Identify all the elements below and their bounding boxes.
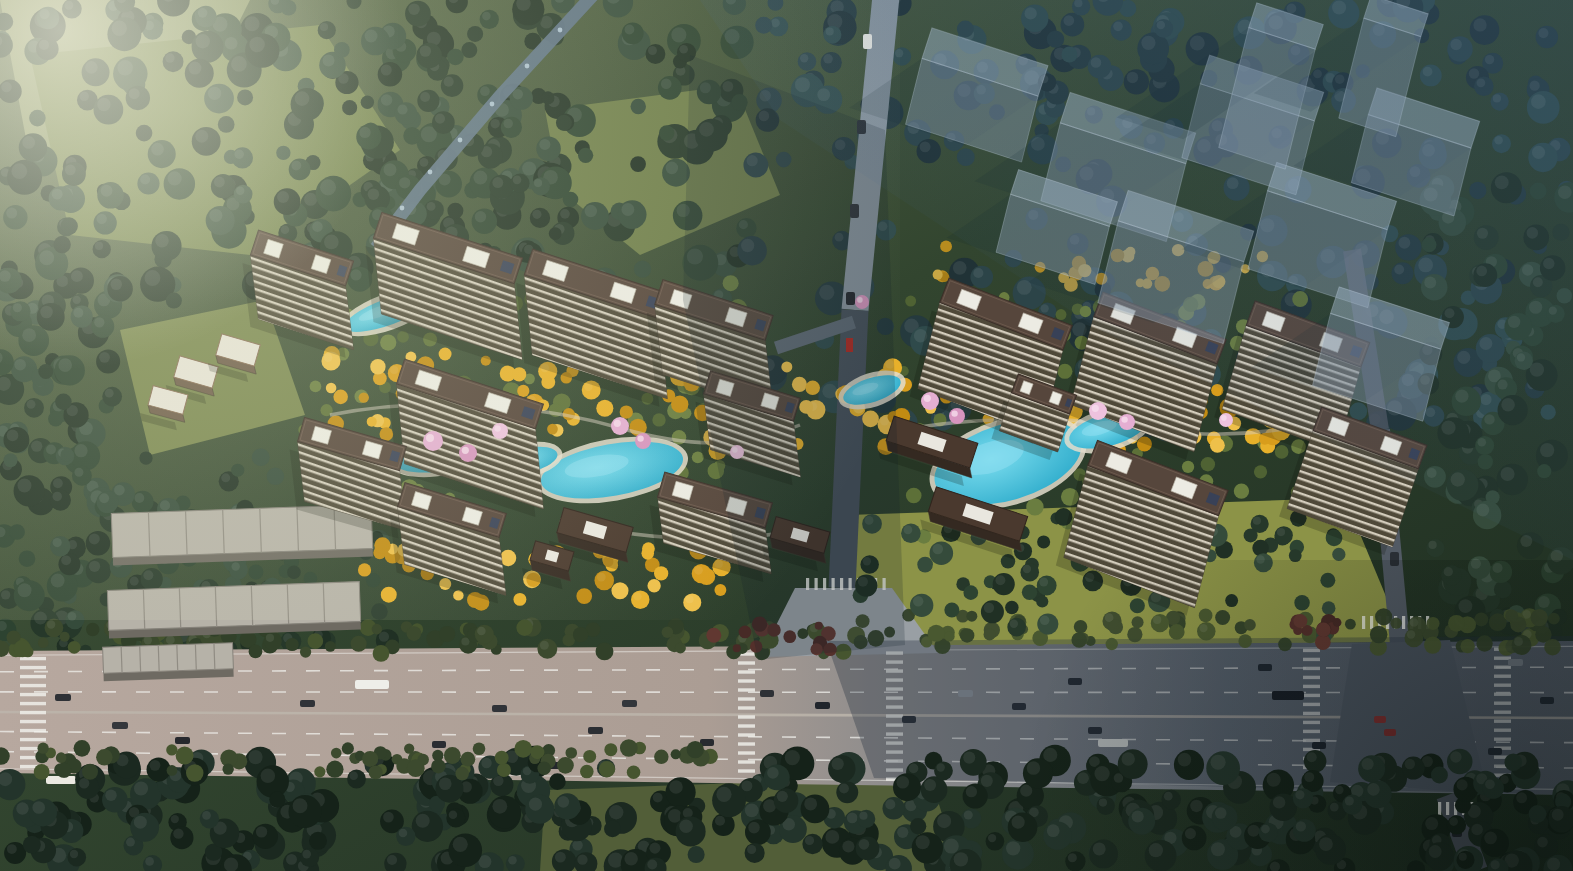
tree-highlight	[266, 634, 274, 642]
car	[622, 700, 637, 707]
tree-highlight	[7, 844, 17, 854]
tree	[739, 626, 752, 639]
blossom-highlight	[1121, 416, 1127, 422]
tree-highlight	[777, 791, 788, 802]
tree	[102, 787, 128, 813]
tree	[74, 740, 91, 757]
tree	[56, 752, 67, 763]
tree	[604, 743, 617, 756]
tree	[300, 646, 311, 657]
tree	[1056, 309, 1067, 320]
tree-highlight	[647, 860, 657, 870]
tree	[166, 744, 177, 755]
tree	[604, 820, 621, 837]
tree	[1201, 457, 1215, 471]
tree	[307, 633, 323, 649]
tree-highlight	[449, 810, 458, 819]
tree-highlight	[679, 819, 693, 833]
tree	[300, 848, 319, 867]
tree-highlight	[889, 858, 901, 870]
tree-highlight	[134, 781, 148, 795]
tree	[4, 842, 26, 864]
tree	[654, 750, 668, 764]
tree	[1244, 528, 1258, 542]
tree	[857, 810, 875, 828]
tree-highlight	[202, 811, 211, 820]
tree	[580, 765, 594, 779]
tree	[940, 240, 952, 252]
zebra-bar	[20, 738, 46, 741]
zebra-bar	[738, 742, 755, 745]
tree-highlight	[741, 780, 752, 791]
tree	[1426, 539, 1444, 557]
tree	[856, 837, 880, 861]
tree	[37, 743, 48, 754]
tree-highlight	[261, 768, 276, 783]
tree	[269, 792, 285, 808]
blossom-highlight	[951, 410, 957, 416]
tree	[23, 836, 41, 854]
tree	[264, 632, 282, 650]
zebra-bar	[738, 688, 755, 691]
tree-highlight	[173, 828, 183, 838]
tree	[906, 488, 922, 504]
car	[760, 690, 774, 697]
tree	[326, 761, 343, 778]
blossom-tree	[949, 408, 965, 424]
zebra-bar	[738, 706, 755, 709]
tree	[431, 759, 445, 773]
tree	[170, 826, 193, 849]
tree	[665, 777, 695, 807]
blossom-tree	[1119, 414, 1135, 430]
tree	[342, 742, 354, 754]
tree	[537, 639, 557, 659]
tree	[1057, 364, 1072, 379]
tree	[444, 747, 461, 764]
car	[815, 702, 830, 709]
tree-highlight	[653, 793, 663, 803]
blossom-highlight	[1092, 405, 1099, 412]
screenshot-root	[0, 0, 1573, 871]
tree-highlight	[649, 843, 660, 854]
blossom-tree	[1219, 413, 1233, 427]
tree	[314, 766, 325, 777]
zebra-bar	[20, 702, 46, 705]
tree	[325, 641, 336, 652]
tree-highlight	[1041, 304, 1049, 312]
tree	[901, 523, 921, 543]
tree	[497, 763, 511, 777]
tree	[905, 296, 916, 307]
tree-highlight	[785, 750, 800, 765]
zebra-bar	[738, 661, 755, 664]
blossom-highlight	[924, 395, 931, 402]
tree	[60, 632, 70, 642]
tree	[712, 783, 746, 817]
zebra-bar	[738, 670, 755, 673]
tree-highlight	[715, 816, 725, 826]
tree	[412, 811, 443, 842]
tree-highlight	[859, 839, 870, 850]
tree	[407, 759, 425, 777]
tree-highlight	[767, 767, 779, 779]
car	[588, 727, 603, 734]
tree-highlight	[555, 852, 566, 863]
tree-highlight	[477, 627, 486, 636]
tree-highlight	[256, 826, 267, 837]
tree	[67, 848, 86, 867]
car	[432, 741, 446, 748]
zebra-bar	[738, 751, 755, 754]
tree-highlight	[839, 784, 849, 794]
tree-highlight	[904, 525, 913, 534]
tree	[446, 808, 465, 827]
tree-highlight	[439, 777, 452, 790]
scene-canvas	[0, 0, 1573, 871]
tree-highlight	[166, 635, 175, 644]
tree-highlight	[150, 760, 161, 771]
tree-highlight	[572, 840, 582, 850]
tree	[1332, 548, 1345, 561]
tree	[1026, 498, 1043, 515]
zebra-bar	[20, 720, 46, 723]
tree-highlight	[144, 636, 152, 644]
tree	[1275, 445, 1289, 459]
tree	[167, 765, 178, 776]
tree	[396, 827, 415, 846]
tree	[407, 626, 422, 641]
car	[492, 705, 507, 712]
tree	[68, 641, 81, 654]
tree-highlight	[529, 798, 542, 811]
tree-highlight	[16, 802, 28, 814]
tree-highlight	[453, 837, 468, 852]
tree	[662, 626, 673, 637]
zebra-bar	[20, 675, 46, 678]
tree-highlight	[481, 758, 491, 768]
tree-highlight	[416, 814, 430, 828]
tree	[514, 740, 532, 758]
tree	[687, 741, 704, 758]
tree	[537, 762, 551, 776]
tree-highlight	[248, 750, 262, 764]
car	[355, 680, 389, 689]
tree	[34, 764, 50, 780]
tree	[802, 834, 822, 854]
tree	[473, 742, 486, 755]
tree	[286, 638, 299, 651]
tree	[82, 764, 98, 780]
zebra-bar	[20, 693, 46, 696]
tree-highlight	[171, 815, 179, 823]
zebra-bar	[20, 711, 46, 714]
corner-vignette	[900, 560, 1573, 871]
tree-highlight	[383, 812, 394, 823]
tree-highlight	[577, 854, 587, 864]
tree	[1037, 535, 1050, 548]
tree	[671, 749, 681, 759]
tree-highlight	[669, 780, 683, 794]
tree	[29, 798, 57, 826]
tree	[1210, 438, 1225, 453]
tree	[347, 770, 366, 789]
tree-highlight	[79, 778, 89, 788]
tree	[288, 795, 321, 828]
tree-highlight	[804, 797, 817, 810]
tree	[620, 739, 638, 757]
tree-highlight	[859, 812, 867, 820]
tree-highlight	[286, 854, 297, 865]
tree	[176, 747, 194, 765]
tree	[565, 747, 577, 759]
tree	[362, 751, 378, 767]
tree-highlight	[105, 789, 117, 801]
tree	[14, 640, 31, 657]
tree	[130, 778, 161, 809]
zebra-bar	[20, 666, 46, 669]
aerial-rendering	[0, 0, 1573, 871]
tree-highlight	[1428, 541, 1436, 549]
car	[175, 737, 190, 744]
tree-highlight	[609, 805, 623, 819]
tree	[256, 765, 288, 797]
tree	[404, 743, 414, 753]
tree-highlight	[540, 641, 549, 650]
tree-highlight	[932, 544, 943, 555]
tree-highlight	[885, 799, 895, 809]
car	[112, 722, 128, 729]
tree-highlight	[399, 829, 408, 838]
tree	[573, 627, 588, 642]
tree-highlight	[47, 620, 55, 628]
tree	[369, 765, 383, 779]
tree	[745, 843, 765, 863]
tree	[372, 624, 383, 635]
tree	[554, 793, 580, 819]
tree	[1275, 526, 1293, 544]
tree	[530, 745, 544, 759]
zebra-bar	[738, 733, 755, 736]
tree-highlight	[831, 758, 843, 770]
tree	[222, 763, 233, 774]
tree-highlight	[716, 787, 731, 802]
tree-highlight	[1277, 528, 1285, 536]
tree	[309, 832, 327, 850]
tree	[675, 642, 686, 653]
tree	[733, 644, 741, 652]
tree	[525, 795, 554, 824]
tree	[253, 824, 278, 849]
tree-highlight	[492, 799, 507, 814]
tree-highlight	[32, 801, 45, 814]
tree	[495, 751, 509, 765]
tree	[461, 752, 476, 767]
tree	[764, 765, 790, 791]
tree	[373, 645, 390, 662]
tree-highlight	[842, 841, 854, 853]
tree-highlight	[748, 822, 760, 834]
tree	[455, 767, 469, 781]
tree	[599, 761, 615, 777]
tree	[200, 809, 219, 828]
tree	[1182, 461, 1194, 473]
tree	[774, 788, 799, 813]
tree	[186, 764, 204, 782]
tree-highlight	[973, 268, 983, 278]
tree-highlight	[70, 850, 78, 858]
lowrise-row	[103, 643, 234, 682]
tree-highlight	[805, 836, 814, 845]
tree	[828, 755, 855, 782]
tree	[1254, 465, 1267, 478]
zebra-bar	[738, 769, 755, 772]
tree	[549, 773, 566, 790]
sun-glow	[0, 0, 560, 420]
tree	[627, 766, 641, 780]
tree	[688, 846, 705, 863]
tree-highlight	[953, 261, 967, 275]
tree-highlight	[145, 857, 154, 866]
tree	[488, 796, 521, 829]
car	[55, 694, 71, 701]
tree-highlight	[126, 838, 135, 847]
tree	[970, 266, 993, 289]
tree-highlight	[747, 845, 756, 854]
zebra-bar	[738, 715, 755, 718]
tree	[583, 750, 596, 763]
tree-highlight	[293, 798, 308, 813]
tree-highlight	[668, 809, 682, 823]
blossom-tree	[921, 392, 939, 410]
tree	[38, 637, 49, 648]
tree	[249, 645, 263, 659]
zebra-bar	[738, 760, 755, 763]
tree	[1234, 483, 1249, 498]
car	[300, 700, 315, 707]
tree-highlight	[349, 771, 357, 779]
tree-highlight	[825, 830, 839, 844]
tree	[439, 626, 455, 642]
tree	[596, 642, 614, 660]
blossom-highlight	[1221, 415, 1227, 421]
tree-highlight	[302, 850, 311, 859]
zebra-bar	[738, 679, 755, 682]
zebra-bar	[20, 729, 46, 732]
tree	[557, 757, 574, 774]
tree	[130, 813, 159, 842]
tree-highlight	[1253, 517, 1261, 525]
tree	[706, 628, 721, 643]
zebra-bar	[20, 684, 46, 687]
zebra-bar	[20, 657, 46, 660]
tree-highlight	[847, 813, 858, 824]
tree	[475, 625, 494, 644]
tree	[801, 795, 830, 824]
tree	[676, 816, 706, 846]
tree-highlight	[387, 855, 397, 865]
tree	[516, 620, 532, 636]
tree	[836, 781, 858, 803]
zebra-bar	[738, 697, 755, 700]
tree	[86, 623, 99, 636]
tree	[351, 636, 367, 652]
tree	[933, 270, 943, 280]
tree-highlight	[624, 852, 638, 866]
blossom-tree	[1089, 402, 1107, 420]
tree	[331, 748, 342, 759]
tree-highlight	[557, 796, 569, 808]
tree-highlight	[745, 803, 759, 817]
tree-highlight	[134, 816, 147, 829]
tree	[96, 749, 112, 765]
tree	[56, 763, 71, 778]
zebra-bar	[738, 724, 755, 727]
tree-highlight	[508, 856, 517, 865]
tree	[448, 833, 482, 867]
